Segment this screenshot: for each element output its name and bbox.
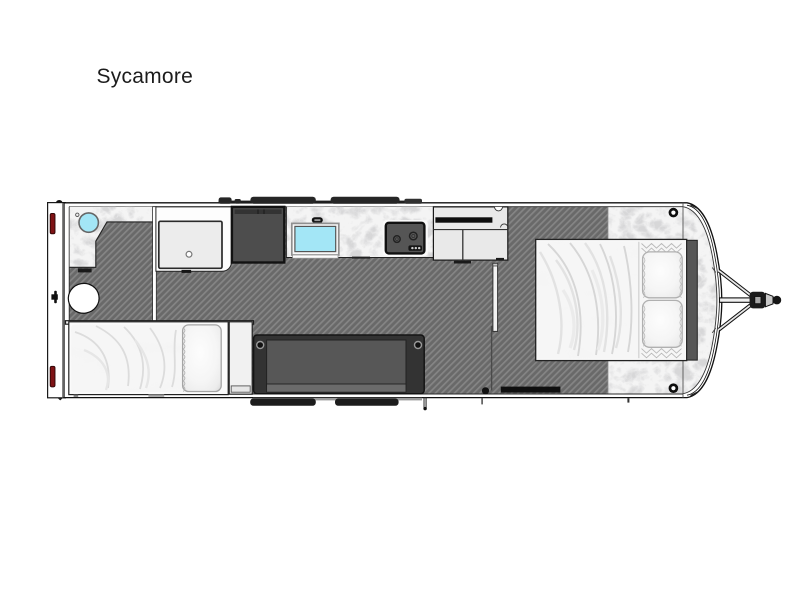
svg-text:Sycamore: Sycamore (97, 65, 194, 88)
